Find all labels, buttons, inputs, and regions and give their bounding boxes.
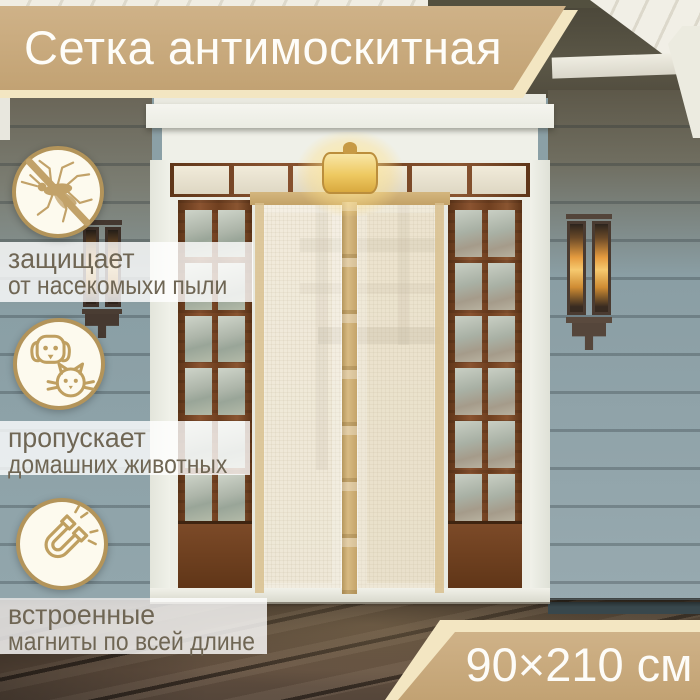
lantern-glass-panels — [567, 221, 611, 315]
sidelight-rail — [448, 200, 522, 210]
glass-pane — [488, 474, 515, 521]
mesh-magnet-strip — [342, 202, 357, 594]
pendant-light — [322, 152, 378, 194]
sidelight-panel — [178, 521, 252, 590]
sidelight-glass-grid — [448, 210, 522, 521]
glass-pane — [488, 368, 515, 415]
transom-pane — [412, 166, 467, 194]
lantern-arm — [82, 309, 122, 314]
glass-pane — [218, 316, 245, 363]
sidelight-right — [448, 200, 522, 590]
feature-caption-insects: защищает от насекомыхи пыли — [0, 242, 253, 302]
glass-pane — [455, 263, 482, 310]
glass-pane — [488, 263, 515, 310]
door-jamb-right — [530, 160, 550, 602]
mesh-side-binding-left — [255, 203, 264, 593]
feature-badge-pets — [13, 318, 105, 410]
pets-icon — [17, 322, 101, 406]
siding-right — [548, 90, 700, 612]
feature-text-line: защищает — [8, 245, 237, 272]
glass-pane — [488, 421, 515, 468]
mesh-side-binding-right — [435, 203, 444, 593]
product-banner: Сетка антимоскитная — [0, 6, 566, 90]
glass-pane — [185, 474, 212, 521]
door-jamb-left — [150, 160, 170, 602]
feature-text-line: встроенные — [8, 601, 250, 628]
mesh-curtain-right-panel — [357, 203, 444, 593]
glass-pane — [185, 316, 212, 363]
glass-pane — [455, 210, 482, 257]
glass-pane — [218, 368, 245, 415]
sidelight-rail — [178, 200, 252, 210]
feature-text-line: от насекомыхи пыли — [8, 272, 220, 299]
feature-text-line: домашних животных — [8, 451, 217, 478]
sidelight-panel — [448, 521, 522, 590]
product-photo-scene: Сетка антимоскитная защищае — [0, 0, 700, 700]
no-mosquito-icon — [16, 150, 100, 234]
glass-pane — [455, 368, 482, 415]
wall-lantern-right — [566, 214, 612, 350]
lantern-bracket — [572, 323, 606, 350]
feature-text-line: магниты по всей длине — [8, 628, 232, 655]
feature-badge-insects — [12, 146, 104, 238]
mesh-curtain-left-panel — [255, 203, 342, 593]
magnet-icon — [20, 502, 104, 586]
glass-pane — [455, 316, 482, 363]
glass-pane — [488, 210, 515, 257]
lantern-glass — [592, 221, 611, 315]
glass-pane — [455, 474, 482, 521]
lantern-cap — [566, 214, 612, 219]
transom-pane — [174, 166, 229, 194]
glass-pane — [488, 316, 515, 363]
pediment-cap — [146, 104, 554, 128]
feature-badge-magnets — [16, 498, 108, 590]
feature-caption-pets: пропускает домашних животных — [0, 421, 250, 475]
transom-pane — [472, 166, 527, 194]
page-title: Сетка антимоскитная — [0, 6, 566, 90]
feature-text-line: пропускает — [8, 424, 234, 451]
lantern-arm — [566, 317, 612, 322]
pendant-light-finial — [343, 142, 357, 154]
glass-pane — [218, 474, 245, 521]
feature-caption-magnets: встроенные магниты по всей длине — [0, 598, 267, 654]
glass-pane — [185, 368, 212, 415]
glass-pane — [455, 421, 482, 468]
lantern-glass — [567, 221, 586, 315]
transom-pane — [234, 166, 289, 194]
